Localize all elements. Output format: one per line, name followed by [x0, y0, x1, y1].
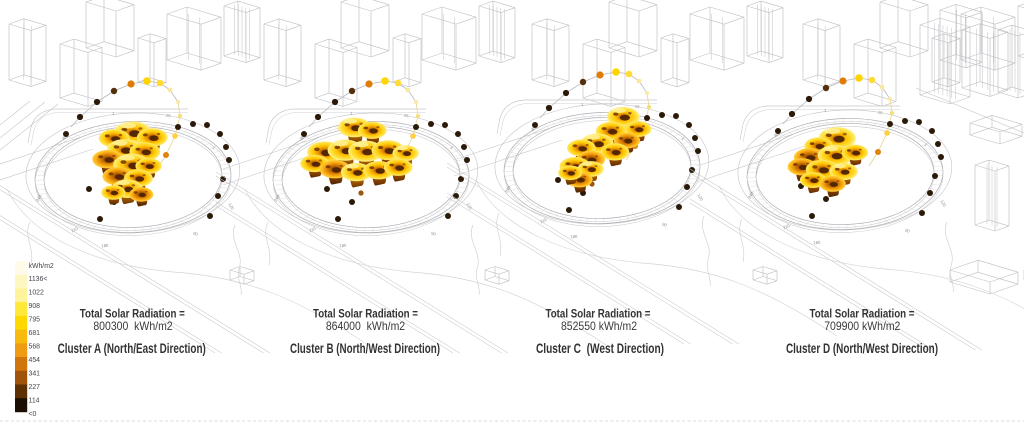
- svg-text:852550 kWh/m2: 852550 kWh/m2: [561, 319, 637, 333]
- svg-text:454: 454: [29, 357, 41, 364]
- svg-text:864000 kWh/m2: 864000 kWh/m2: [326, 319, 406, 333]
- svg-text:180: 180: [101, 243, 109, 249]
- svg-text:709900 kWh/m2: 709900 kWh/m2: [824, 319, 900, 333]
- svg-text:Cluster D (North/West Directio: Cluster D (North/West Direction): [786, 341, 938, 356]
- svg-text:227: 227: [29, 384, 41, 391]
- svg-text:<0: <0: [29, 411, 37, 418]
- svg-text:180: 180: [570, 234, 578, 240]
- svg-text:Cluster A (North/East Directio: Cluster A (North/East Direction): [58, 341, 206, 356]
- svg-text:908: 908: [29, 303, 41, 310]
- svg-text:568: 568: [29, 344, 41, 351]
- svg-text:kWh/m2: kWh/m2: [29, 263, 54, 270]
- svg-text:Cluster C (West Direction): Cluster C (West Direction): [536, 341, 664, 356]
- svg-text:180: 180: [339, 243, 347, 249]
- svg-text:Cluster B (North/West Directio: Cluster B (North/West Direction): [290, 341, 440, 356]
- svg-text:1022: 1022: [29, 290, 44, 297]
- svg-text:795: 795: [29, 317, 41, 324]
- svg-text:341: 341: [29, 370, 41, 377]
- svg-text:180: 180: [813, 240, 821, 246]
- svg-text:800300 kWh/m2: 800300 kWh/m2: [93, 319, 173, 333]
- svg-text:1136<: 1136<: [29, 276, 48, 283]
- svg-text:114: 114: [29, 397, 40, 404]
- svg-text:681: 681: [29, 330, 41, 337]
